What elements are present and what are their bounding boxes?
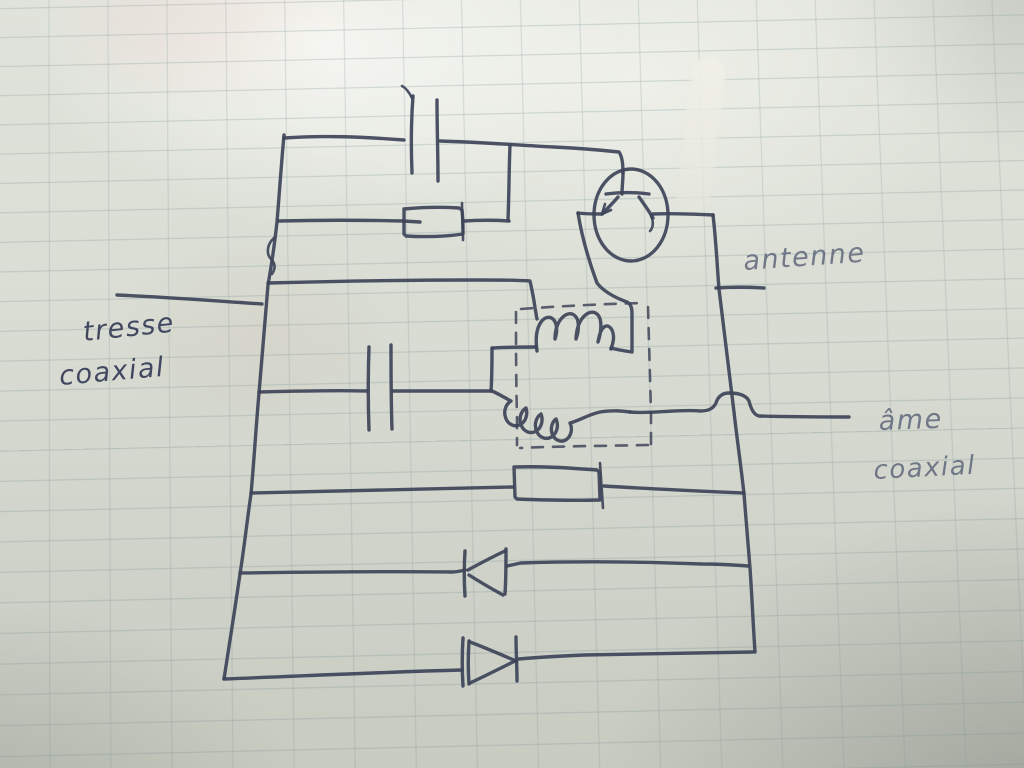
node-drop-wire xyxy=(508,145,510,220)
ame-coaxial-output-wire xyxy=(630,393,849,417)
antenna-terminal-stub xyxy=(716,287,764,288)
left-bus-wire xyxy=(224,135,284,679)
diode-d2 xyxy=(224,637,753,686)
resistor-r2 xyxy=(251,463,744,508)
label-antenne: antenne xyxy=(742,238,866,277)
capacitor-c1 xyxy=(402,86,623,181)
circuit-sketch: tresse coaxial antenne âme coaxial xyxy=(0,0,1024,768)
right-bus-wire xyxy=(713,215,755,652)
label-ame-coaxial: coaxial xyxy=(873,451,977,486)
emitter-to-primary-wire xyxy=(578,213,632,352)
top-wire xyxy=(284,137,404,140)
transformer-t1 xyxy=(492,303,651,448)
base-feed-wire xyxy=(268,280,537,319)
label-tresse: tresse xyxy=(81,308,176,348)
transistor-q1 xyxy=(578,169,713,261)
capacitor-c2 xyxy=(259,345,536,430)
diode-d1 xyxy=(240,549,748,596)
resistor-r1 xyxy=(278,203,509,240)
secondary-winding xyxy=(492,391,630,441)
tresse-coaxial-lead-wire xyxy=(117,295,262,304)
label-ame: âme xyxy=(878,404,943,437)
photo-of-notebook-page: tresse coaxial antenne âme coaxial xyxy=(0,0,1024,768)
primary-winding xyxy=(536,312,613,351)
label-tresse-coaxial: coaxial xyxy=(58,352,166,392)
